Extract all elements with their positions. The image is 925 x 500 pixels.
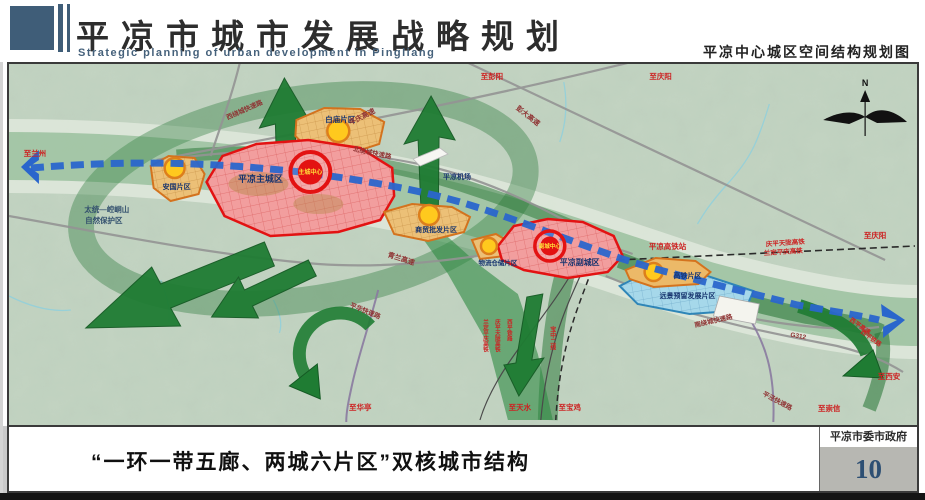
baozhong2-label: 宝中二线	[549, 325, 556, 351]
footer: “一环一带五廊、两城六片区”双核城市结构 平凉市委市政府 10	[9, 427, 917, 491]
map-title: 平凉中心城区空间结构规划图	[703, 42, 911, 62]
main-center-label: 主城中心	[298, 168, 322, 176]
page: 平凉市城市发展战略规划 Strategic planning of urban …	[0, 0, 925, 500]
to-qingyang-right-label: 至庆阳	[864, 230, 886, 240]
wuliu-label: 物流仓储片区	[478, 258, 517, 267]
yuanjing-label: 远景预留发展片区	[660, 291, 716, 300]
structure-caption: “一环一带五廊、两城六片区”双核城市结构	[91, 446, 530, 476]
gaotie-label: 高铁片区	[674, 271, 702, 280]
page-subtitle: Strategic planning of urban development …	[78, 47, 435, 59]
credit-label: 平凉市委市政府	[820, 427, 917, 447]
to-chongxin-label: 至崇信	[818, 403, 841, 413]
to-tianshui-label: 至天水	[509, 402, 532, 412]
anguo-label: 安国片区	[163, 182, 191, 191]
logo-bar	[67, 4, 70, 52]
main-city-label: 平凉主城区	[238, 173, 283, 184]
to-baoji-label: 至宝鸡	[559, 402, 582, 412]
to-qingyang-top-label: 至庆阳	[649, 71, 671, 81]
to-pengyang-label: 至彭阳	[481, 71, 503, 81]
builtup-patch	[293, 194, 343, 214]
xiping-vertical-label: 西平铁路	[506, 318, 513, 342]
document-frame: N 安国片区 白庙片区 平凉主城区 主城中心 商贸批发片区 物流仓储片区 平凉副…	[7, 62, 919, 493]
to-lanzhou-label: 至兰州	[24, 148, 46, 158]
credit-box: 平凉市委市政府 10	[819, 427, 917, 491]
left-edge-shadow	[0, 62, 3, 493]
wuliu-node	[481, 238, 497, 254]
airport-label: 平凉机场	[443, 172, 471, 181]
to-xian-label: 至西安	[878, 371, 901, 381]
page-number: 10	[820, 447, 917, 491]
shangmao-node	[419, 205, 439, 225]
sub-city-label: 平凉副城区	[560, 257, 600, 267]
logo-square	[10, 6, 54, 50]
to-huating-label: 至华亭	[349, 402, 372, 412]
bottom-shadow-bar	[0, 493, 925, 500]
logo-bar	[58, 4, 63, 52]
reserve-label-1: 太统—崆峒山	[84, 204, 129, 214]
shangmao-label: 商贸批发片区	[415, 225, 457, 234]
sub-center-label: 副城中心	[539, 242, 561, 250]
planning-map: N 安国片区 白庙片区 平凉主城区 主城中心 商贸批发片区 物流仓储片区 平凉副…	[9, 64, 917, 427]
map-canvas: N 安国片区 白庙片区 平凉主城区 主城中心 商贸批发片区 物流仓储片区 平凉副…	[9, 64, 917, 425]
hsr-station-label: 平凉高铁站	[649, 241, 687, 251]
compass-n-label: N	[862, 78, 868, 88]
reserve-label-2: 自然保护区	[85, 215, 123, 225]
